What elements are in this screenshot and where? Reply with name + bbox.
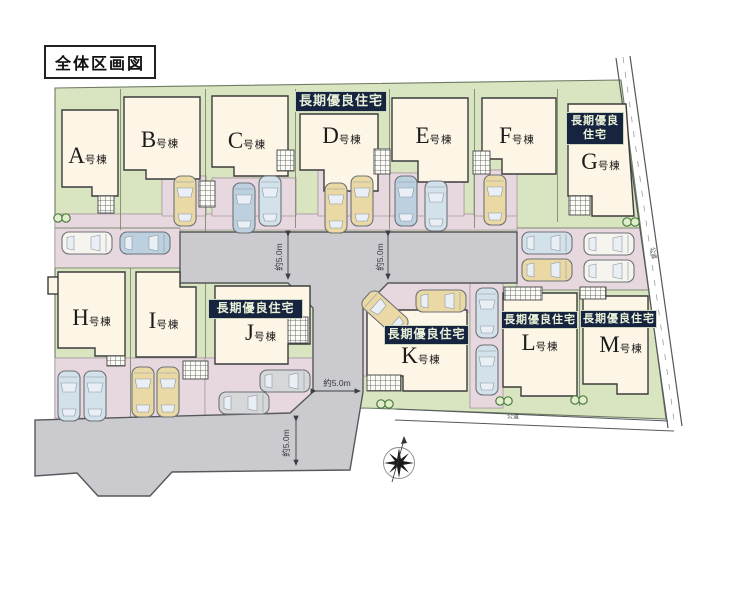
car-icon — [58, 371, 80, 421]
car-icon — [522, 232, 572, 254]
stairs-hatch — [183, 361, 208, 379]
car-icon — [219, 392, 269, 414]
stairs-hatch — [199, 181, 215, 207]
stairs-hatch — [504, 287, 542, 300]
car-icon — [584, 233, 634, 255]
page-title: 全体区画図 — [44, 45, 156, 79]
car-icon — [476, 288, 498, 338]
stairs-hatch — [374, 149, 390, 174]
stairs-hatch — [580, 287, 606, 299]
car-icon — [174, 176, 196, 226]
building-footprint-H — [58, 272, 125, 356]
building-footprint-L — [503, 293, 577, 396]
compass-icon — [379, 436, 419, 483]
car-icon — [132, 367, 154, 417]
car-icon — [425, 181, 447, 231]
stairs-hatch — [107, 356, 125, 366]
car-icon — [522, 259, 572, 281]
building-footprint-B — [124, 97, 200, 179]
stairs-hatch — [473, 151, 490, 174]
stairs-hatch — [569, 196, 590, 215]
stairs-hatch — [367, 375, 401, 391]
car-icon — [484, 175, 506, 225]
building-footprint-M — [583, 296, 648, 394]
car-icon — [233, 183, 255, 233]
car-icon — [120, 232, 170, 254]
building-footprint-A — [62, 110, 118, 196]
stairs-hatch — [277, 150, 294, 171]
car-icon — [157, 367, 179, 417]
car-icon — [476, 345, 498, 395]
stairs-hatch — [98, 196, 114, 213]
stairs-hatch — [288, 317, 308, 343]
car-icon — [84, 371, 106, 421]
car-icon — [584, 260, 634, 282]
car-icon — [62, 232, 112, 254]
car-icon — [259, 176, 281, 226]
site-plan-page: A号棟B号棟C号棟D号棟E号棟F号棟G号棟H号棟I号棟J号棟K号棟L号棟M号棟長… — [0, 0, 740, 590]
car-icon — [416, 290, 466, 312]
car-icon — [260, 370, 310, 392]
car-icon — [325, 183, 347, 233]
site-plan-drawing — [0, 0, 740, 590]
car-icon — [351, 176, 373, 226]
car-icon — [395, 176, 417, 226]
